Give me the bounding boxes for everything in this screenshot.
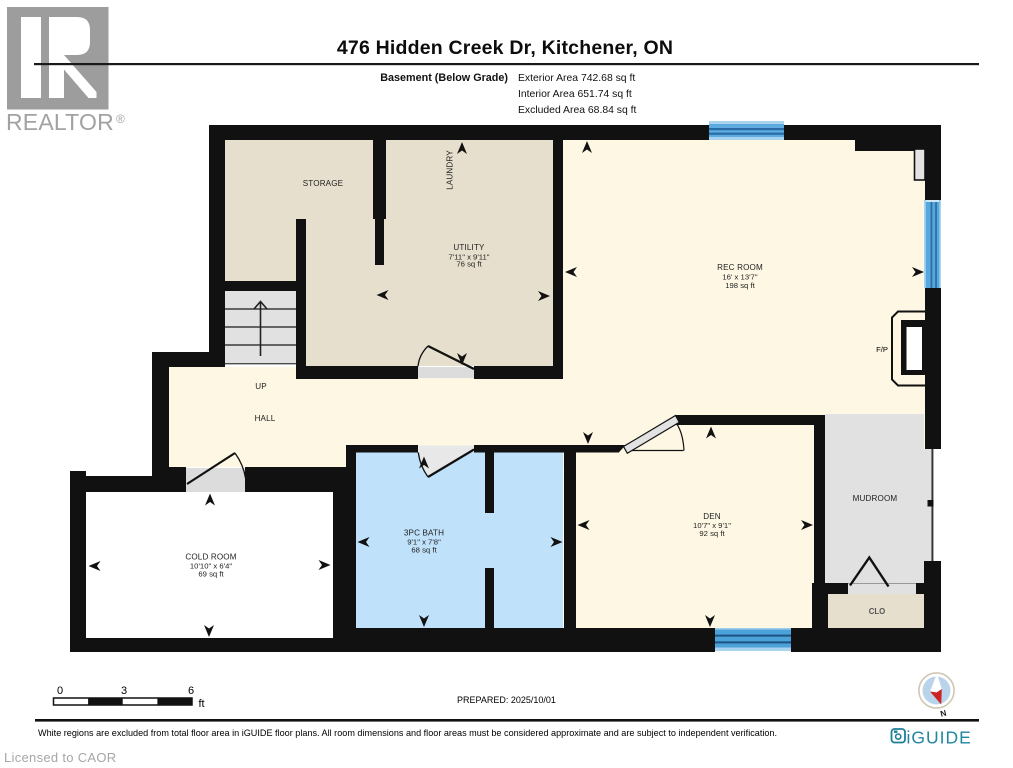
svg-text:Exterior Area 742.68 sq ft: Exterior Area 742.68 sq ft bbox=[518, 73, 635, 84]
svg-text:REALTOR: REALTOR bbox=[6, 109, 114, 135]
svg-text:F/P: F/P bbox=[876, 345, 888, 354]
svg-text:N: N bbox=[939, 708, 947, 718]
svg-text:68 sq ft: 68 sq ft bbox=[411, 546, 437, 555]
svg-text:STORAGE: STORAGE bbox=[303, 179, 344, 188]
svg-text:69 sq ft: 69 sq ft bbox=[198, 570, 224, 579]
svg-text:MUDROOM: MUDROOM bbox=[853, 494, 898, 503]
svg-text:3: 3 bbox=[121, 685, 127, 697]
svg-text:Excluded Area 68.84 sq ft: Excluded Area 68.84 sq ft bbox=[518, 105, 637, 116]
svg-text:Licensed to CAOR: Licensed to CAOR bbox=[4, 750, 116, 765]
svg-text:LAUNDRY: LAUNDRY bbox=[446, 150, 455, 190]
svg-text:0: 0 bbox=[57, 685, 63, 697]
svg-text:Interior Area 651.74 sq ft: Interior Area 651.74 sq ft bbox=[518, 89, 632, 100]
svg-text:iGUIDE: iGUIDE bbox=[907, 728, 972, 748]
svg-text:UTILITY: UTILITY bbox=[453, 243, 485, 252]
svg-text:®: ® bbox=[116, 112, 125, 126]
svg-text:White regions are excluded fro: White regions are excluded from total fl… bbox=[38, 728, 777, 738]
svg-text:PREPARED: 2025/10/01: PREPARED: 2025/10/01 bbox=[457, 695, 556, 705]
svg-text:92 sq ft: 92 sq ft bbox=[699, 529, 725, 538]
svg-text:ft: ft bbox=[199, 698, 205, 710]
svg-text:6: 6 bbox=[188, 685, 194, 697]
svg-text:76 sq ft: 76 sq ft bbox=[456, 260, 482, 269]
svg-text:476 Hidden Creek Dr, Kitchener: 476 Hidden Creek Dr, Kitchener, ON bbox=[337, 37, 673, 59]
svg-text:UP: UP bbox=[255, 382, 267, 391]
svg-text:DEN: DEN bbox=[703, 512, 721, 521]
svg-text:3PC BATH: 3PC BATH bbox=[404, 529, 444, 538]
svg-text:COLD ROOM: COLD ROOM bbox=[185, 553, 236, 562]
svg-text:REC ROOM: REC ROOM bbox=[717, 263, 763, 272]
svg-text:HALL: HALL bbox=[255, 414, 276, 423]
svg-text:CLO: CLO bbox=[869, 607, 885, 616]
svg-text:198 sq ft: 198 sq ft bbox=[725, 281, 755, 290]
svg-text:Basement (Below Grade): Basement (Below Grade) bbox=[380, 72, 508, 84]
